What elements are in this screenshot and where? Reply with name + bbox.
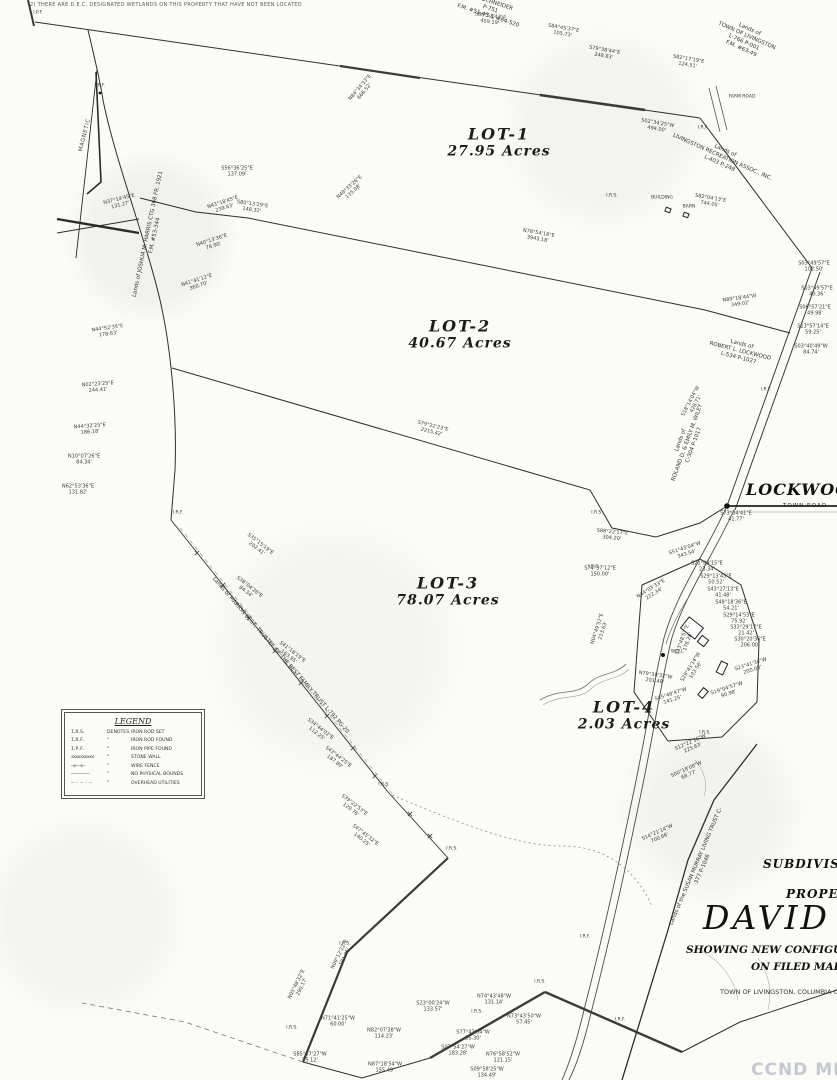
bearing-label: S56°36'25"E 137.09' xyxy=(221,166,253,178)
lot-name: LOT-1 xyxy=(447,125,550,144)
bearing-label: N02°23'25"E 244.41' xyxy=(82,381,115,395)
monument-marker: I.R.F. xyxy=(615,1018,625,1023)
bearing-label: N76°58'52"W 121.15' xyxy=(486,1052,520,1064)
east-boundary-line xyxy=(700,118,812,268)
lockwood-road-label: LOCKWOOD R xyxy=(746,480,837,499)
legend-denotes: " xyxy=(107,737,131,745)
legend-description: IRON ROD SET xyxy=(131,729,195,737)
monument-marker: I.R.S. xyxy=(446,847,457,852)
legend-row: I.P.F. " IRON PIPE FOUND xyxy=(65,746,201,754)
legend-row: I.R.S. DENOTES IRON ROD SET xyxy=(65,729,201,737)
lot-acreage: 40.67 Acres xyxy=(408,336,511,352)
lot-acreage: 27.95 Acres xyxy=(447,144,550,160)
bearing-label: S03°40'49"W 84.74' xyxy=(794,344,827,356)
title-owner-name: DAVID B xyxy=(703,898,837,937)
title-filed-map-line: ON FILED MAP # xyxy=(751,961,837,973)
distance-text: 84.34' xyxy=(68,460,100,466)
legend-box: LEGEND I.R.S. DENOTES IRON ROD SET I.R.F… xyxy=(64,712,202,796)
legend-row: xxxxxxxxxx " STONE WALL xyxy=(65,754,201,762)
monument-marker: BUILDING xyxy=(651,196,673,201)
legend-description: NO PHYSICAL BOUNDS xyxy=(131,771,195,779)
south-boundary-2 xyxy=(682,990,837,1052)
distance-text: 59.25' xyxy=(797,330,829,336)
monument-marker: I.R.F. xyxy=(698,126,708,131)
lot2-lot3-line xyxy=(172,368,727,537)
legend-description: WIRE FENCE xyxy=(131,763,195,771)
monument-marker: I.R.S. xyxy=(339,942,350,947)
distance-text: 137.09' xyxy=(221,172,253,178)
distance-text: 155.49' xyxy=(368,1068,402,1074)
north-arrow xyxy=(57,70,139,258)
bearing-label: N44°32'25"E 186.18' xyxy=(74,423,107,437)
distance-text: 23.34' xyxy=(691,567,723,573)
mls-watermark: CCND MLS xyxy=(751,1060,837,1080)
legend-symbol: xxxxxxxxxx xyxy=(71,754,107,762)
bearing-label: N62°53'36"E 131.82' xyxy=(62,484,94,496)
bearing-label: S43°27'13"E 41.48' xyxy=(707,587,739,599)
legend-symbol: I.R.F. xyxy=(71,737,107,745)
bearing-label: S73°34'41"E 41.77' xyxy=(720,511,752,523)
legend-row: — - — - — " OVERHEAD UTILITIES xyxy=(65,780,201,788)
legend-description: IRON ROD FOUND xyxy=(131,737,195,745)
distance-text: 131.82' xyxy=(62,490,94,496)
distance-text: 54.21' xyxy=(715,606,747,612)
legend-row: I.R.F. " IRON ROD FOUND xyxy=(65,737,201,745)
legend-denotes: " xyxy=(107,771,131,779)
bearing-label: N74°43'48"W 131.14' xyxy=(477,994,511,1006)
monument-marker: I.R.F. xyxy=(173,511,183,516)
bearing-label: S13°57'14"E 59.25' xyxy=(797,324,829,336)
bearing-label: N87°18'54"W 155.49' xyxy=(368,1062,402,1074)
monument-marker: FARM ROAD xyxy=(729,95,756,100)
bearing-label: N73°43'50"W 57.45' xyxy=(507,1014,541,1026)
bearing-label: S77°43'54"W 55.30' xyxy=(456,1030,489,1042)
legend-description: IRON PIPE FOUND xyxy=(131,746,195,754)
monument-marker: I.R.S. xyxy=(588,565,599,570)
distance-text: 41.48' xyxy=(707,593,739,599)
distance-text: 41.77' xyxy=(720,517,752,523)
distance-text: 133.57' xyxy=(416,1007,449,1013)
monument-marker: I.R.S. xyxy=(591,511,602,516)
town-road-label: TOWN ROAD xyxy=(783,503,827,509)
monument-marker: I.P.F. xyxy=(33,11,43,16)
bearing-label: S23°00'24"W 133.57' xyxy=(416,1001,449,1013)
lot-acreage: 78.07 Acres xyxy=(396,593,499,609)
legend-denotes: DENOTES xyxy=(107,729,131,737)
stream-line xyxy=(540,664,626,700)
distance-text: 50.52' xyxy=(700,580,732,586)
monument-marker: I.R.F. xyxy=(761,388,771,393)
bearing-label: N71°41'25"W 60.00' xyxy=(321,1016,355,1028)
stone-wall-north-2 xyxy=(540,95,645,110)
legend-rows: I.R.S. DENOTES IRON ROD SET I.R.F. " IRO… xyxy=(65,729,201,788)
monument-marker: WELL xyxy=(671,650,683,655)
legend-description: STONE WALL xyxy=(131,754,195,762)
monument-marker: I.R.F. xyxy=(95,84,105,89)
stone-wall-north-1 xyxy=(340,66,420,78)
title-showing-line: SHOWING NEW CONFIGURAT xyxy=(686,944,837,956)
bearing-label: S03°49'57"E 102.50' xyxy=(798,261,830,273)
distance-text: 75.12' xyxy=(293,1058,326,1064)
legend-denotes: " xyxy=(107,754,131,762)
bearing-label: S33°29'17"E 21.42' xyxy=(730,625,762,637)
bearing-label: S09°58'25"W 134.49' xyxy=(470,1067,503,1079)
distance-text: 60.00' xyxy=(321,1022,355,1028)
distance-text: 131.14' xyxy=(477,1000,511,1006)
legend-description: OVERHEAD UTILITIES xyxy=(131,780,195,788)
legend-title: LEGEND xyxy=(65,717,201,726)
distance-text: 84.74' xyxy=(794,350,827,356)
monument-marker: I.R.S. xyxy=(534,980,545,985)
bearing-label: S85°57'27"W 75.12' xyxy=(293,1052,326,1064)
bearing-label: N10°07'26"E 84.34' xyxy=(68,454,100,466)
title-town-line: TOWN OF LIVINGSTON, COLUMBIA C xyxy=(720,988,837,996)
west-boundary-curve xyxy=(88,30,175,520)
bottom-left-dashed xyxy=(82,1003,303,1062)
monument-marker: I.R.S. xyxy=(378,783,389,788)
lot1-lot2-line xyxy=(140,198,790,333)
farm-road xyxy=(709,86,727,132)
lot-label: LOT-3 78.07 Acres xyxy=(396,574,499,609)
monument-marker: BARN xyxy=(683,205,696,210)
distance-text: 150.00' xyxy=(584,572,616,578)
bearing-label: S30°20'36"E 206.00' xyxy=(734,637,766,649)
bearing-label: S03°49'57"E 40.36' xyxy=(801,286,833,298)
monument-marker: I.R.S. xyxy=(699,731,710,736)
bearing-label: S06°57'21"E 49.98' xyxy=(799,305,831,317)
legend-denotes: " xyxy=(107,780,131,788)
legend-denotes: " xyxy=(107,763,131,771)
stone-wall-south-2 xyxy=(545,992,682,1052)
lot-name: LOT-3 xyxy=(396,574,499,593)
distance-text: 183.28' xyxy=(441,1051,474,1057)
distance-text: 55.30' xyxy=(456,1036,489,1042)
legend-row: ———————— " NO PHYSICAL BOUNDS xyxy=(65,771,201,779)
distance-text: 40.36' xyxy=(801,292,833,298)
legend-symbol: I.P.F. xyxy=(71,746,107,754)
distance-text: 49.98' xyxy=(799,311,831,317)
distance-text: 206.00' xyxy=(734,643,766,649)
survey-note: 2) THERE ARE D.E.C. DESIGNATED WETLANDS … xyxy=(30,2,302,8)
bearing-label: S29°13'43"E 50.52' xyxy=(700,574,732,586)
bearing-label: S48°18'36"E 54.21' xyxy=(715,600,747,612)
distance-text: 121.15' xyxy=(486,1058,520,1064)
legend-symbol: — - — - — xyxy=(71,780,107,788)
distance-text: 102.50' xyxy=(798,267,830,273)
monument-marker: I.R.S. xyxy=(286,1026,297,1031)
survey-map-scan: 2) THERE ARE D.E.C. DESIGNATED WETLANDS … xyxy=(0,0,837,1080)
monument-marker: I.R.S. xyxy=(606,194,617,199)
lot-label: LOT-2 40.67 Acres xyxy=(408,317,511,352)
bearing-label: N82°07'38"W 114.23' xyxy=(367,1028,401,1040)
bearing-label: S21°09'15"E 23.34' xyxy=(691,561,723,573)
bearing-label: S07°54'27"W 183.28' xyxy=(441,1045,474,1057)
legend-row: —x——x— " WIRE FENCE xyxy=(65,763,201,771)
distance-text: 134.49' xyxy=(470,1073,503,1079)
lot-label: LOT-1 27.95 Acres xyxy=(447,125,550,160)
lot-name: LOT-2 xyxy=(408,317,511,336)
title-subdivision: SUBDIVISION xyxy=(763,857,837,871)
monument-marker: I.R.S. xyxy=(471,1010,482,1015)
bearing-label: S29°14'53"E 75.92' xyxy=(723,613,755,625)
legend-symbol: I.R.S. xyxy=(71,729,107,737)
distance-text: 114.23' xyxy=(367,1034,401,1040)
monument-marker: I.R.F. xyxy=(580,935,590,940)
legend-symbol: ———————— xyxy=(71,771,107,779)
legend-symbol: —x——x— xyxy=(71,763,107,771)
lot-acreage: 2.03 Acres xyxy=(578,717,671,733)
legend-denotes: " xyxy=(107,746,131,754)
distance-text: 57.45' xyxy=(507,1020,541,1026)
